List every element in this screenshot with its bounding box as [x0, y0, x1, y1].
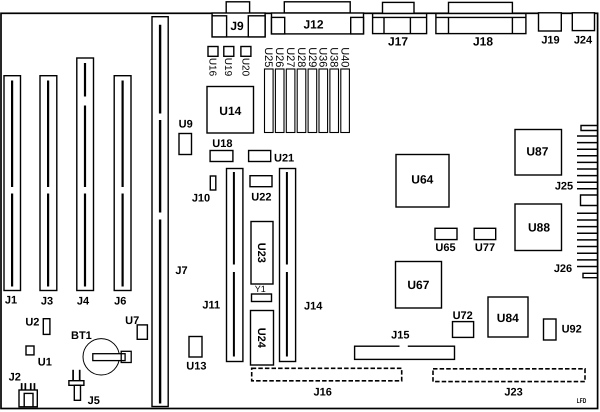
- svg-text:J14: J14: [304, 301, 323, 313]
- svg-text:U20: U20: [239, 58, 250, 77]
- svg-text:U19: U19: [222, 58, 233, 77]
- svg-text:J2: J2: [9, 371, 21, 383]
- svg-text:J24: J24: [574, 34, 593, 46]
- svg-text:U13: U13: [186, 360, 206, 372]
- svg-text:U84: U84: [497, 311, 519, 325]
- svg-text:U65: U65: [435, 242, 455, 254]
- svg-text:U1: U1: [38, 357, 52, 369]
- svg-text:J9: J9: [230, 19, 244, 33]
- svg-text:J26: J26: [554, 263, 572, 275]
- svg-text:Y1: Y1: [255, 284, 266, 294]
- svg-text:U92: U92: [562, 323, 582, 335]
- svg-text:U64: U64: [411, 173, 433, 187]
- svg-text:J12: J12: [303, 17, 323, 31]
- svg-text:J18: J18: [473, 35, 493, 49]
- svg-text:U22: U22: [251, 191, 271, 203]
- svg-text:U40: U40: [338, 47, 350, 67]
- svg-text:U36: U36: [317, 47, 329, 67]
- svg-text:J11: J11: [202, 300, 220, 312]
- svg-text:J7: J7: [175, 265, 187, 277]
- svg-text:U25: U25: [262, 47, 274, 67]
- svg-text:U2: U2: [25, 317, 39, 329]
- svg-text:J25: J25: [555, 181, 573, 193]
- svg-text:J6: J6: [114, 296, 126, 308]
- svg-text:J3: J3: [41, 296, 53, 308]
- svg-text:J4: J4: [77, 296, 90, 308]
- svg-text:U9: U9: [179, 118, 193, 130]
- svg-text:U26: U26: [273, 47, 285, 67]
- svg-text:U88: U88: [528, 221, 550, 235]
- svg-text:U23: U23: [255, 243, 267, 263]
- svg-text:J1: J1: [5, 295, 17, 307]
- svg-text:J5: J5: [88, 395, 100, 407]
- svg-text:U77: U77: [475, 242, 495, 254]
- svg-text:U38: U38: [328, 47, 340, 67]
- svg-text:LFD: LFD: [577, 398, 587, 405]
- svg-text:J16: J16: [314, 387, 332, 399]
- svg-text:U27: U27: [284, 47, 296, 67]
- svg-text:U21: U21: [274, 152, 294, 164]
- svg-text:U72: U72: [453, 310, 473, 322]
- svg-text:U24: U24: [255, 328, 267, 349]
- svg-text:U16: U16: [206, 58, 217, 77]
- svg-text:U14: U14: [219, 104, 241, 118]
- svg-text:J23: J23: [504, 386, 522, 398]
- svg-text:U87: U87: [526, 145, 548, 159]
- svg-text:U67: U67: [407, 278, 429, 292]
- svg-text:U29: U29: [306, 47, 318, 67]
- svg-text:BT1: BT1: [71, 330, 92, 342]
- svg-text:J19: J19: [541, 34, 559, 46]
- svg-text:U18: U18: [212, 138, 232, 150]
- svg-text:J10: J10: [192, 193, 210, 205]
- svg-text:J17: J17: [388, 35, 408, 49]
- svg-text:U28: U28: [295, 47, 307, 67]
- svg-text:J15: J15: [391, 330, 409, 342]
